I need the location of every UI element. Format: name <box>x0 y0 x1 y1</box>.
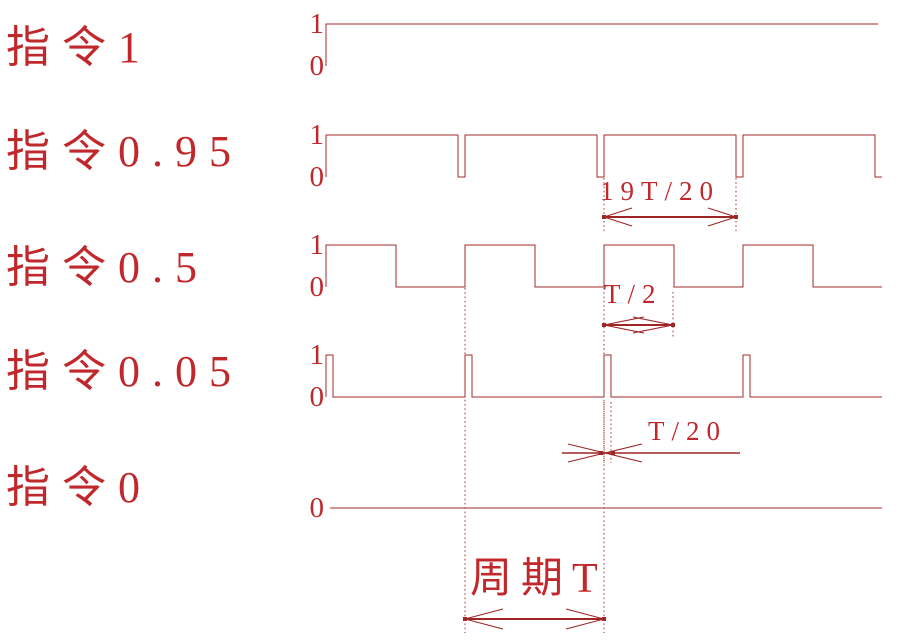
dim-t20-tip <box>611 451 615 455</box>
dim-t2-arrow-tip <box>671 323 675 327</box>
row-label-duty-05: 指令0.5 <box>6 242 209 294</box>
waveform-plot-area <box>0 0 904 644</box>
dimension-label-period: 周期T <box>470 553 607 605</box>
dim-19t20-arrow-head <box>604 217 632 226</box>
dim-t2-arrow-head <box>633 325 673 333</box>
waveform-trace-duty-1 <box>326 24 878 66</box>
dim-19t20-arrow-head <box>604 208 632 217</box>
dim-t20-tip <box>599 451 603 455</box>
dim-period-arrow-head <box>566 619 604 629</box>
axis-level-high-row0: 1 <box>298 9 324 39</box>
dim-19t20-arrow-head <box>708 208 736 217</box>
row-label-duty-005: 指令0.05 <box>6 346 243 398</box>
dim-19t20-arrow-tip <box>734 215 738 219</box>
axis-level-low-row2: 0 <box>298 272 324 302</box>
dim-t2-arrow-head <box>633 317 673 325</box>
dim-period-arrow-head <box>465 619 503 629</box>
pwm-timing-diagram: 指令1 指令0.95 指令0.5 指令0.05 指令0 1 0 1 0 1 0 … <box>0 0 904 644</box>
row-label-duty-095: 指令0.95 <box>6 126 243 178</box>
axis-level-low-row4: 0 <box>298 493 324 523</box>
dim-19t20-arrow-tip <box>602 215 606 219</box>
axis-level-low-row0: 0 <box>298 51 324 81</box>
dim-period-arrow-head <box>465 609 503 619</box>
axis-level-low-row3: 0 <box>298 382 324 412</box>
dim-t2-arrow-tip <box>602 323 606 327</box>
row-label-duty-1: 指令1 <box>6 22 152 74</box>
dimension-label-t20: T/20 <box>648 416 727 446</box>
dim-period-arrow-head <box>566 609 604 619</box>
axis-level-high-row1: 1 <box>298 120 324 150</box>
axis-level-high-row2: 1 <box>298 230 324 260</box>
dimension-label-t2: T/2 <box>604 279 663 309</box>
waveform-trace-duty-0.95 <box>326 135 882 177</box>
dimension-label-19t20: 19T/20 <box>600 176 720 206</box>
row-label-duty-0: 指令0 <box>6 462 152 514</box>
dim-19t20-arrow-head <box>708 217 736 226</box>
dim-period-arrow-tip <box>602 617 606 621</box>
axis-level-low-row1: 0 <box>298 162 324 192</box>
dim-period-arrow-tip <box>463 617 467 621</box>
axis-level-high-row3: 1 <box>298 340 324 370</box>
